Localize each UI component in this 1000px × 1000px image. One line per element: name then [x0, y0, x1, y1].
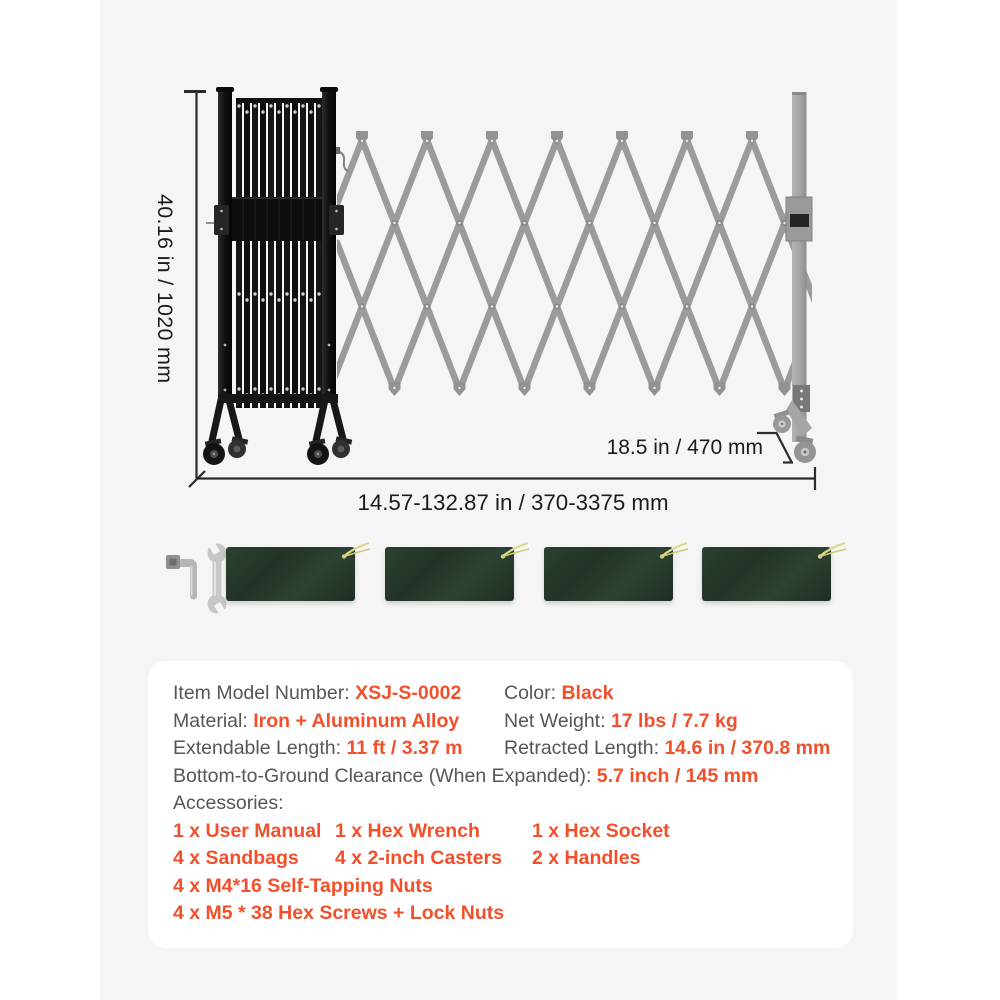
- accessory-item: 1 x Hex Wrench: [335, 818, 532, 846]
- sandbag-image: [544, 547, 673, 601]
- gate-casters: [203, 436, 352, 465]
- spec-label: Accessories:: [173, 792, 284, 814]
- spec-value: 17 lbs / 7.7 kg: [611, 710, 738, 732]
- end-post-illustration: [773, 92, 816, 463]
- spec-item-model: Item Model Number: XSJ-S-0002: [173, 680, 504, 708]
- drawstring-tie-icon: [499, 539, 531, 563]
- spec-row-lengths: Extendable Length: 11 ft / 3.37 m Retrac…: [173, 735, 843, 763]
- lattice-top-finials: [356, 131, 758, 145]
- retracted-gate-illustration: [203, 87, 352, 465]
- spec-value: XSJ-S-0002: [355, 682, 461, 704]
- height-dimension-line: [184, 92, 206, 488]
- spec-label: Color:: [504, 682, 556, 704]
- specs-card: Item Model Number: XSJ-S-0002 Color: Bla…: [148, 661, 853, 948]
- expanded-lattice-illustration: [265, 131, 850, 396]
- gate-center-plate: [231, 197, 327, 241]
- drawstring-tie-icon: [340, 539, 372, 563]
- accessory-item: 4 x 2-inch Casters: [335, 845, 532, 873]
- accessory-item: 4 x M5 * 38 Hex Screws + Lock Nuts: [173, 902, 504, 924]
- accessories-row-2: 4 x Sandbags 4 x 2-inch Casters 2 x Hand…: [173, 845, 843, 873]
- sandbag-image: [702, 547, 831, 601]
- length-dimension-label: 14.57-132.87 in / 370-3375 mm: [348, 490, 678, 516]
- sandbag-image: [226, 547, 355, 601]
- length-dimension-line: [197, 467, 816, 490]
- drawstring-tie-icon: [658, 539, 690, 563]
- spec-material: Material: Iron + Aluminum Alloy: [173, 708, 504, 736]
- hex-wrench-icon: [166, 555, 197, 600]
- accessory-item: 4 x M4*16 Self-Tapping Nuts: [173, 875, 433, 897]
- gate-left-post: [218, 90, 232, 402]
- spec-row-model-color: Item Model Number: XSJ-S-0002 Color: Bla…: [173, 680, 843, 708]
- spec-label: Material:: [173, 710, 248, 732]
- drawstring-tie-icon: [816, 539, 848, 563]
- open-end-wrench-icon: [206, 538, 228, 618]
- depth-dimension-label: 18.5 in / 470 mm: [590, 436, 763, 460]
- spec-value: 11 ft / 3.37 m: [346, 737, 462, 759]
- accessory-item: 4 x Sandbags: [173, 845, 335, 873]
- spec-color: Color: Black: [504, 680, 843, 708]
- spec-value: Black: [561, 682, 613, 704]
- gate-left-latch: [214, 205, 229, 235]
- spec-label: Retracted Length:: [504, 737, 659, 759]
- spec-label: Bottom-to-Ground Clearance (When Expande…: [173, 765, 591, 787]
- spec-net-weight: Net Weight: 17 lbs / 7.7 kg: [504, 708, 843, 736]
- spec-value: 14.6 in / 370.8 mm: [664, 737, 830, 759]
- accessories-heading: Accessories:: [173, 790, 843, 818]
- spec-extendable-length: Extendable Length: 11 ft / 3.37 m: [173, 735, 504, 763]
- product-spec-infographic: { "illustration": { "height_label": "40.…: [0, 0, 1000, 1000]
- end-post-caster-front: [773, 410, 791, 433]
- spec-label: Net Weight:: [504, 710, 606, 732]
- accessory-item: 2 x Handles: [532, 845, 843, 873]
- accessory-item: 1 x Hex Socket: [532, 818, 843, 846]
- spec-retracted-length: Retracted Length: 14.6 in / 370.8 mm: [504, 735, 843, 763]
- spec-row-material-weight: Material: Iron + Aluminum Alloy Net Weig…: [173, 708, 843, 736]
- spec-value: 5.7 inch / 145 mm: [597, 765, 759, 787]
- spec-clearance: Bottom-to-Ground Clearance (When Expande…: [173, 763, 843, 791]
- spec-label: Extendable Length:: [173, 737, 341, 759]
- accessories-row-3: 4 x M4*16 Self-Tapping Nuts: [173, 873, 843, 901]
- sandbag-image: [385, 547, 514, 601]
- gate-right-post: [322, 90, 336, 402]
- accessory-item: 1 x User Manual: [173, 818, 335, 846]
- spec-value: Iron + Aluminum Alloy: [253, 710, 459, 732]
- gate-right-latch: [329, 205, 344, 235]
- accessories-row-1: 1 x User Manual 1 x Hex Wrench 1 x Hex S…: [173, 818, 843, 846]
- height-dimension-label: 40.16 in / 1020 mm: [152, 194, 177, 414]
- gate-slats: [236, 98, 322, 408]
- accessories-row-4: 4 x M5 * 38 Hex Screws + Lock Nuts: [173, 900, 843, 928]
- end-post-caster-rear: [794, 435, 816, 463]
- spec-label: Item Model Number:: [173, 682, 350, 704]
